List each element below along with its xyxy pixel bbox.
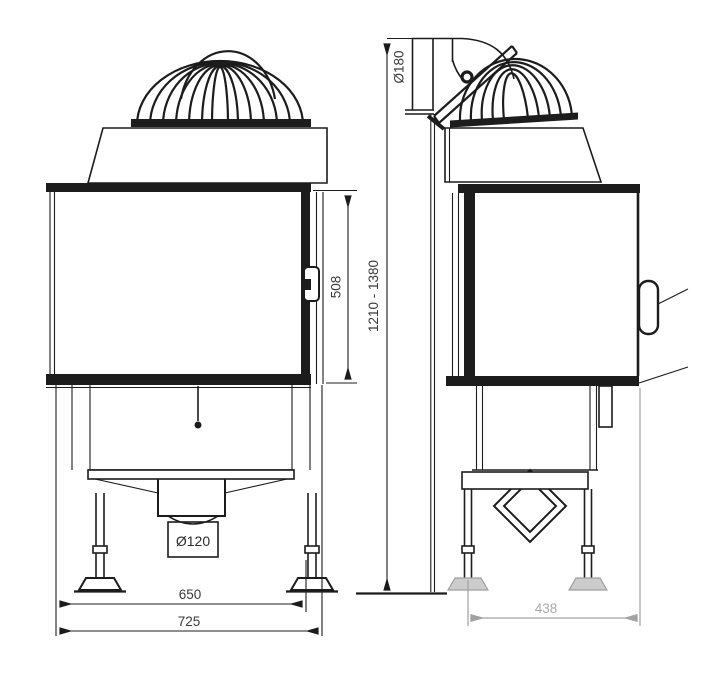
leg-foot	[291, 578, 333, 590]
front-view: Ø120 508 650	[46, 51, 357, 636]
fireplace-insert-drawing: Ø120 508 650	[0, 0, 704, 680]
front-dome-cap	[131, 51, 311, 127]
side-back-panel	[464, 193, 475, 385]
handle-leader-line	[658, 289, 688, 304]
firebox-top-bar	[46, 183, 311, 192]
side-dome-base	[450, 113, 578, 128]
dim-intake-diameter-label: Ø120	[176, 533, 210, 549]
dim-inner-width-label: 650	[179, 587, 202, 602]
dim-flue-diameter-label: Ø180	[392, 50, 407, 83]
dome-ribs	[150, 62, 290, 125]
side-top-bar	[458, 184, 640, 193]
bottom-leader-line	[639, 367, 688, 383]
door-handle	[639, 281, 658, 334]
front-base	[72, 385, 310, 470]
dim-depth-label: 438	[535, 601, 558, 616]
side-body	[446, 184, 688, 386]
front-firebox-door	[50, 192, 323, 384]
damper-bolt	[462, 72, 472, 82]
dome-base-flange	[131, 119, 311, 127]
side-base	[472, 386, 612, 470]
side-hood	[445, 128, 601, 182]
front-hood	[88, 128, 327, 183]
side-bottom-bar	[446, 376, 639, 386]
dim-height-range-label: 1210 - 1380	[366, 260, 381, 332]
leg-joint	[305, 546, 319, 553]
air-intake-duct: Ø120	[88, 470, 294, 557]
side-intake-duct	[462, 470, 588, 542]
leg-foot	[569, 578, 607, 590]
technical-drawing-page: Ø120 508 650	[0, 0, 704, 680]
firebox-bottom-bar	[46, 374, 311, 385]
support-band	[88, 470, 294, 479]
side-view: 1210 - 1380 Ø180 438	[356, 38, 688, 626]
leg-joint	[462, 546, 474, 553]
dim-overall-width-label: 725	[178, 614, 201, 629]
side-pedestal	[462, 472, 588, 489]
leg-joint	[93, 546, 107, 553]
leg-foot	[79, 578, 121, 590]
door-release-pin	[195, 386, 202, 429]
dim-door-height-label: 508	[329, 276, 344, 299]
door-latch-notch	[303, 279, 311, 290]
dome-outline	[137, 61, 303, 125]
leg-joint	[582, 546, 594, 553]
